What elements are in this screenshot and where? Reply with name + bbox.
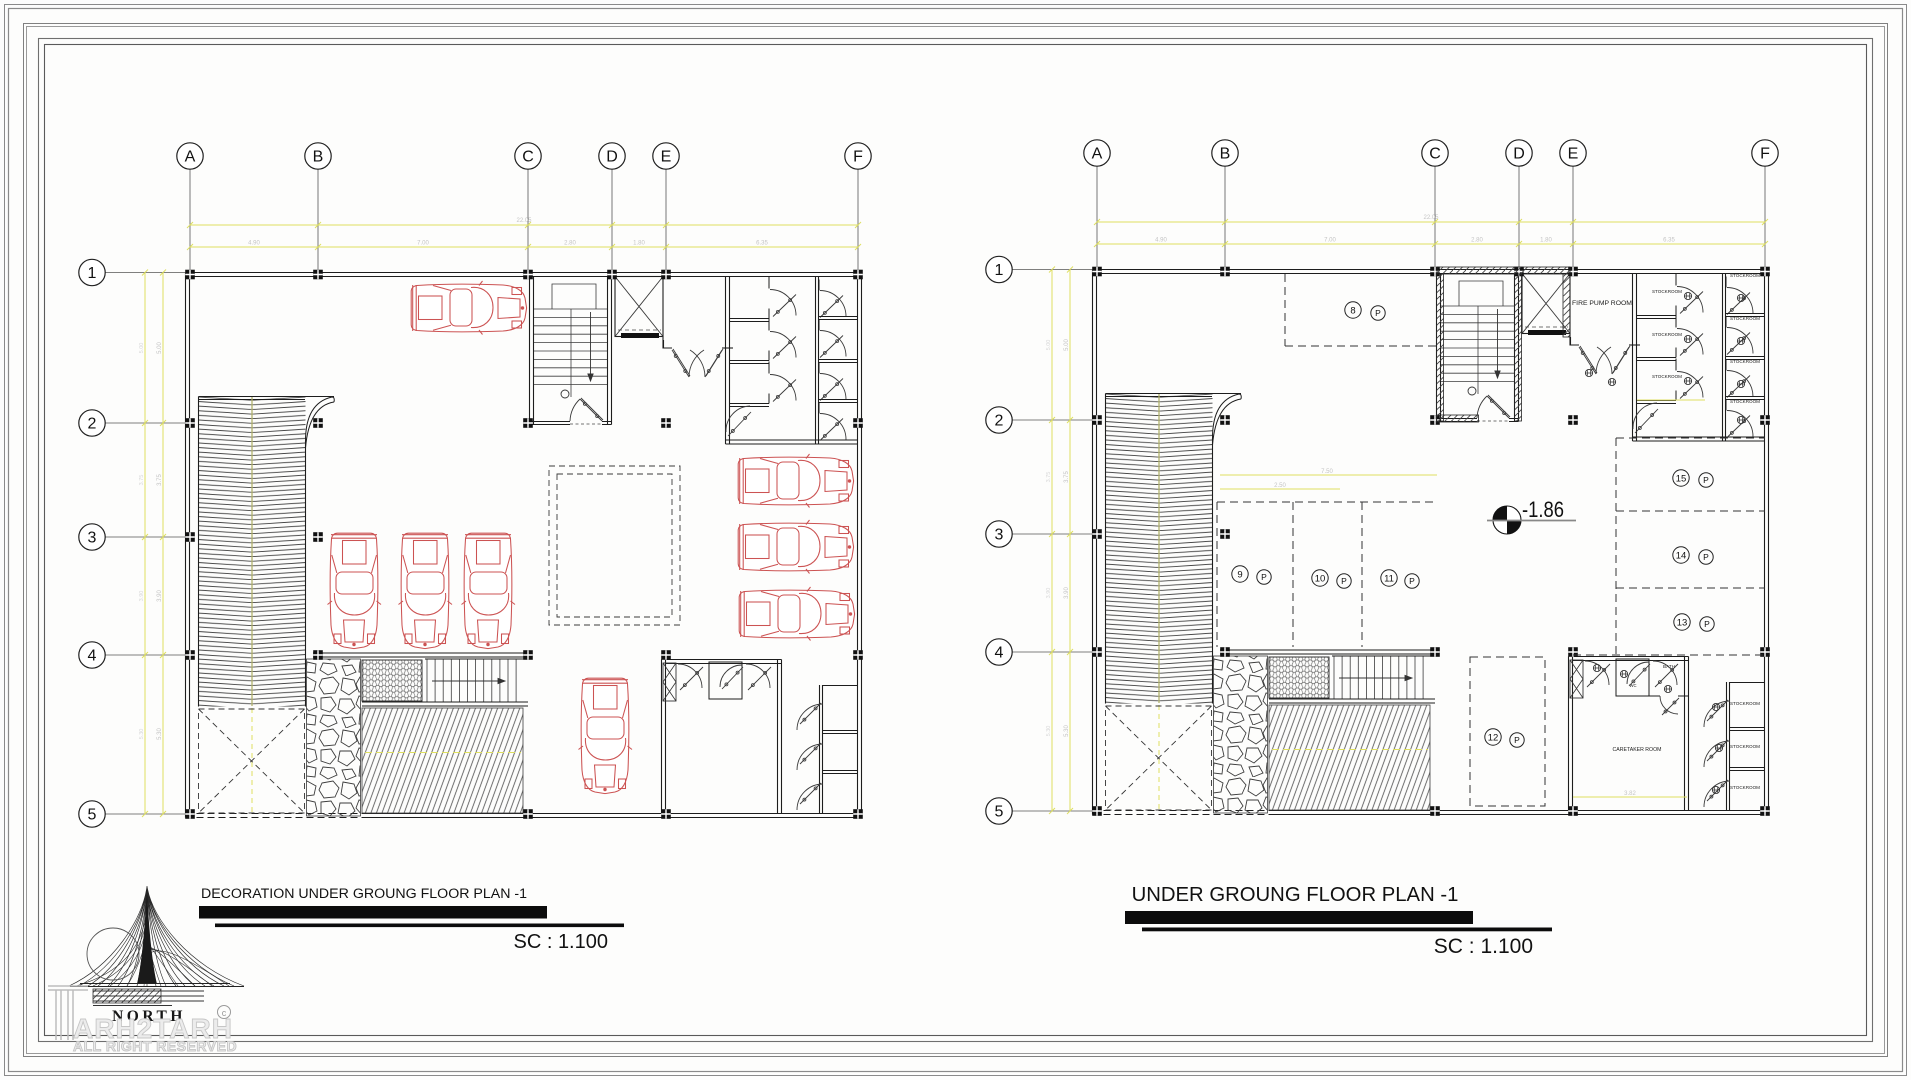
svg-text:D: D (606, 149, 618, 166)
svg-text:15: 15 (1676, 473, 1687, 484)
svg-text:5: 5 (995, 804, 1004, 821)
svg-text:13: 13 (1677, 617, 1688, 628)
svg-text:6.35: 6.35 (1663, 238, 1675, 244)
svg-text:P: P (1375, 308, 1381, 318)
svg-text:5: 5 (88, 807, 97, 824)
svg-text:P: P (1514, 735, 1520, 745)
svg-text:6.35: 6.35 (756, 241, 768, 247)
svg-text:4: 4 (995, 645, 1004, 662)
svg-text:CARETAKER ROOM: CARETAKER ROOM (1613, 747, 1662, 753)
svg-text:1.80: 1.80 (1540, 238, 1552, 244)
svg-text:P: P (1703, 475, 1709, 485)
svg-text:SC : 1.100: SC : 1.100 (1434, 935, 1533, 958)
svg-text:1: 1 (88, 265, 97, 282)
svg-text:22.05: 22.05 (1423, 215, 1439, 221)
svg-text:3.90: 3.90 (1064, 587, 1070, 599)
svg-text:3.90: 3.90 (157, 590, 163, 602)
svg-text:3.75: 3.75 (1046, 472, 1052, 483)
svg-text:WC: WC (1630, 683, 1637, 688)
svg-text:E: E (1568, 146, 1579, 163)
svg-text:5.00: 5.00 (157, 342, 163, 354)
svg-text:4: 4 (88, 648, 97, 665)
svg-text:8: 8 (1350, 305, 1355, 316)
svg-text:5.30: 5.30 (1064, 725, 1070, 737)
svg-text:ALL RIGHT RESERVED: ALL RIGHT RESERVED (73, 1038, 237, 1054)
svg-text:STOCKROOM: STOCKROOM (1730, 316, 1760, 321)
svg-text:3.90: 3.90 (1046, 588, 1052, 599)
svg-text:2.80: 2.80 (1471, 238, 1483, 244)
svg-text:5.30: 5.30 (157, 728, 163, 740)
svg-text:STOCKROOM: STOCKROOM (1730, 359, 1760, 364)
svg-text:10: 10 (1315, 573, 1326, 584)
svg-text:STOCKROOM: STOCKROOM (1730, 273, 1760, 278)
svg-text:5.00: 5.00 (1064, 339, 1070, 351)
svg-text:DECORATION UNDER GROUNG FLOOR: DECORATION UNDER GROUNG FLOOR PLAN -1 (201, 886, 527, 902)
svg-text:22.05: 22.05 (516, 218, 532, 224)
svg-text:-1.86: -1.86 (1522, 497, 1564, 522)
svg-text:STOCKROOM: STOCKROOM (1652, 374, 1682, 379)
svg-text:B: B (1220, 146, 1231, 163)
svg-text:2: 2 (995, 413, 1004, 430)
svg-text:5.30: 5.30 (139, 729, 145, 740)
svg-text:C: C (1429, 146, 1441, 163)
svg-text:P: P (1409, 576, 1415, 586)
svg-text:1.80: 1.80 (633, 241, 645, 247)
svg-text:1: 1 (995, 262, 1004, 279)
svg-text:F: F (1760, 146, 1770, 163)
svg-text:STOCKROOM: STOCKROOM (1730, 399, 1760, 404)
svg-text:5.00: 5.00 (1046, 340, 1052, 351)
svg-text:7.00: 7.00 (1324, 238, 1336, 244)
svg-text:4.90: 4.90 (1155, 238, 1167, 244)
svg-text:A: A (1092, 146, 1103, 163)
svg-text:E: E (661, 149, 672, 166)
svg-text:BATH: BATH (1663, 664, 1675, 669)
svg-text:7.50: 7.50 (1321, 469, 1333, 475)
svg-text:4.90: 4.90 (248, 241, 260, 247)
svg-text:P: P (1703, 552, 1709, 562)
svg-text:11: 11 (1384, 573, 1394, 584)
svg-text:STOCKROOM: STOCKROOM (1652, 332, 1682, 337)
svg-text:2: 2 (88, 416, 97, 433)
svg-text:STOCKROOM: STOCKROOM (1730, 744, 1760, 749)
svg-text:STOCKROOM: STOCKROOM (1652, 289, 1682, 294)
svg-text:14: 14 (1676, 550, 1687, 561)
svg-text:STOCKROOM: STOCKROOM (1730, 785, 1760, 790)
svg-text:F: F (853, 149, 863, 166)
svg-text:5.00: 5.00 (139, 343, 145, 354)
svg-text:SC : 1.100: SC : 1.100 (513, 931, 608, 953)
svg-text:B: B (313, 149, 324, 166)
svg-text:C: C (522, 149, 534, 166)
svg-text:A: A (185, 149, 196, 166)
svg-text:STOCKROOM: STOCKROOM (1730, 701, 1760, 706)
svg-text:P: P (1261, 572, 1267, 582)
svg-text:2.80: 2.80 (564, 241, 576, 247)
svg-text:P: P (1704, 619, 1710, 629)
svg-text:2.50: 2.50 (1274, 483, 1286, 489)
svg-text:P: P (1341, 576, 1347, 586)
svg-text:D: D (1513, 146, 1525, 163)
svg-text:12: 12 (1488, 732, 1499, 743)
svg-text:3.82: 3.82 (1624, 791, 1636, 797)
svg-text:7.00: 7.00 (417, 241, 429, 247)
svg-text:3: 3 (995, 527, 1004, 544)
svg-text:3.90: 3.90 (139, 591, 145, 602)
svg-text:UNDER GROUNG FLOOR PLAN -1: UNDER GROUNG FLOOR PLAN -1 (1132, 884, 1459, 906)
svg-text:3.75: 3.75 (1064, 471, 1070, 483)
svg-text:5.30: 5.30 (1046, 726, 1052, 737)
svg-text:FIRE PUMP ROOM: FIRE PUMP ROOM (1572, 300, 1632, 307)
svg-text:3.75: 3.75 (139, 475, 145, 486)
svg-text:3: 3 (88, 530, 97, 547)
svg-text:3.75: 3.75 (157, 474, 163, 486)
svg-text:c: c (222, 1008, 227, 1018)
svg-text:9: 9 (1237, 569, 1242, 580)
